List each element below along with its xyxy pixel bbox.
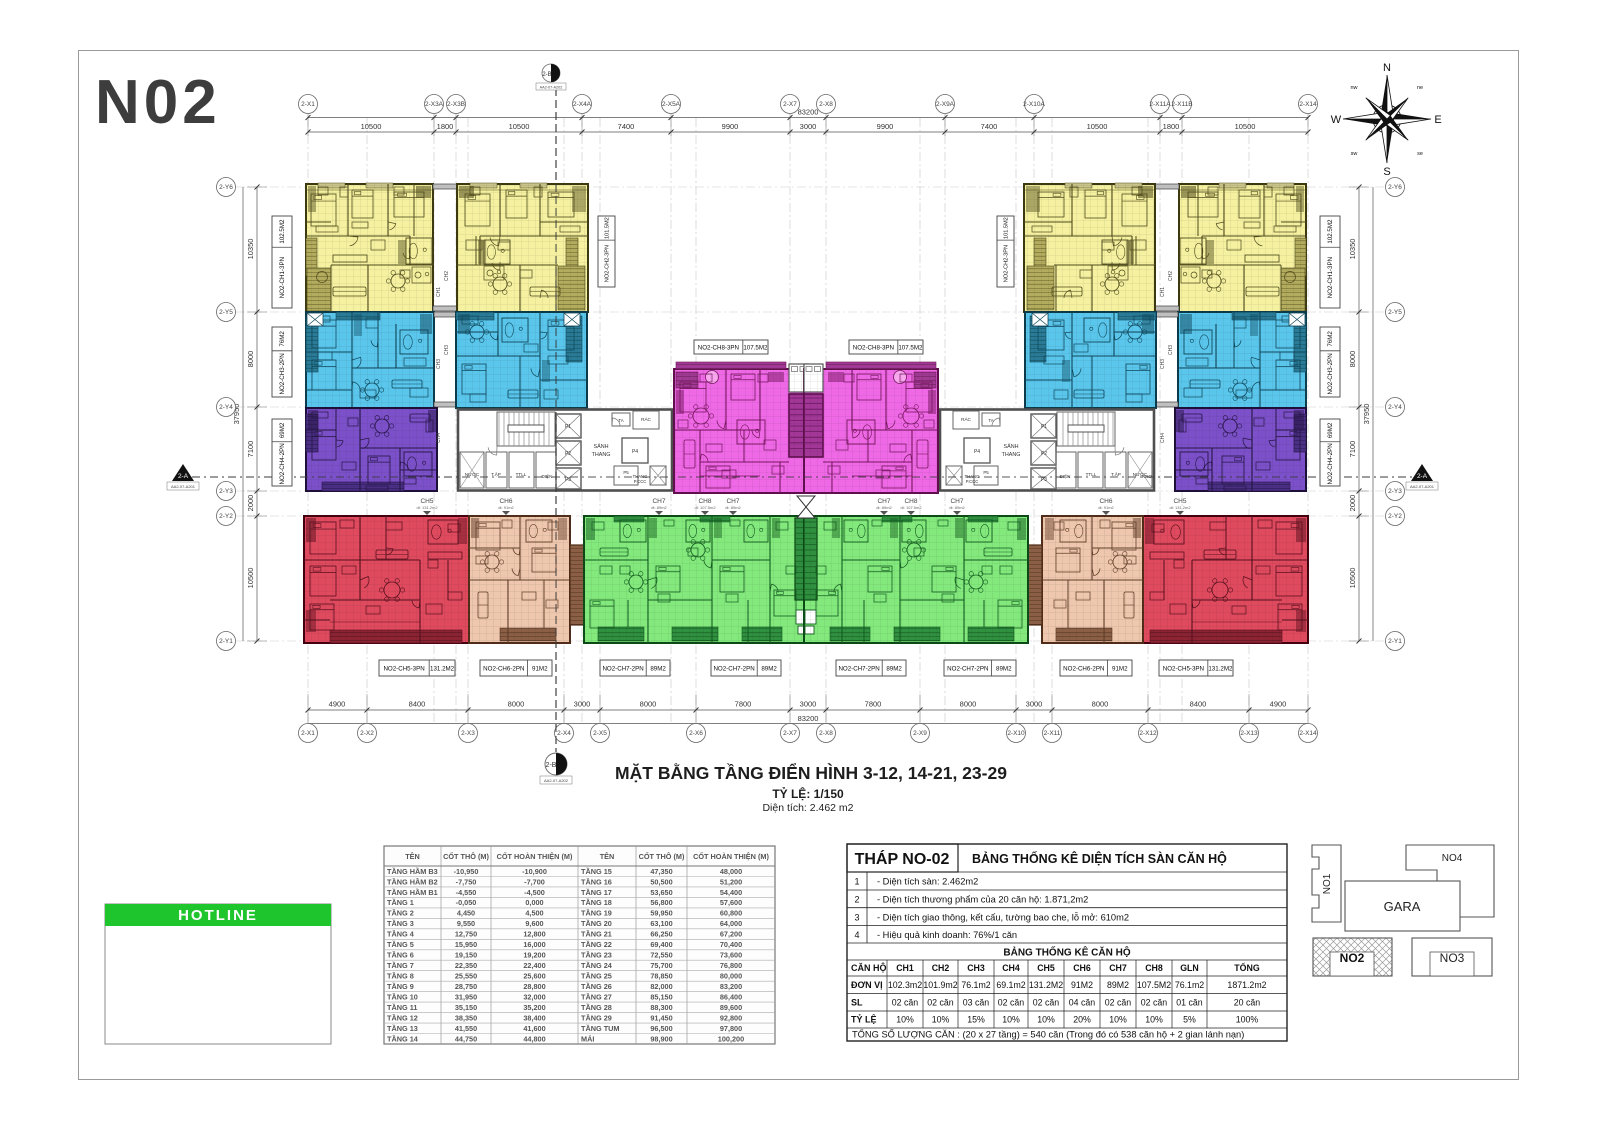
svg-text:2-X12: 2-X12: [1139, 730, 1157, 737]
svg-text:CH3: CH3: [967, 963, 985, 973]
svg-text:7100: 7100: [1348, 441, 1357, 458]
svg-text:131.2M2: 131.2M2: [1029, 980, 1063, 990]
svg-text:CH6: CH6: [1099, 498, 1112, 505]
svg-text:TA: TA: [618, 418, 623, 423]
svg-text:9,550: 9,550: [457, 919, 475, 928]
svg-text:-4,500: -4,500: [524, 888, 545, 897]
svg-text:15,950: 15,950: [455, 940, 477, 949]
svg-text:CH6: CH6: [499, 498, 512, 505]
svg-text:CH2: CH2: [932, 963, 950, 973]
svg-text:100%: 100%: [1236, 1015, 1259, 1025]
svg-text:2-X13: 2-X13: [1240, 730, 1258, 737]
svg-text:76M2: 76M2: [1327, 331, 1334, 347]
svg-text:TẦNG 27: TẦNG 27: [581, 992, 612, 1002]
svg-text:dt: 89m2: dt: 89m2: [949, 505, 965, 510]
svg-text:76.1m2: 76.1m2: [961, 980, 990, 990]
svg-text:P.CCC: P.CCC: [966, 479, 979, 484]
svg-text:4,450: 4,450: [457, 909, 475, 918]
svg-text:CỐT THÔ (M): CỐT THÔ (M): [639, 851, 685, 861]
svg-text:10500: 10500: [1087, 122, 1108, 131]
svg-text:50,500: 50,500: [650, 877, 672, 886]
svg-text:TTLL: TTLL: [516, 472, 527, 477]
svg-text:-10,950: -10,950: [454, 867, 479, 876]
svg-text:0,000: 0,000: [525, 898, 543, 907]
svg-text:2-Y1: 2-Y1: [219, 638, 233, 645]
svg-text:TẦNG 6: TẦNG 6: [387, 950, 414, 960]
svg-text:TẦNG 25: TẦNG 25: [581, 971, 612, 981]
svg-text:NO2-CH4-2PN: NO2-CH4-2PN: [1327, 443, 1334, 484]
svg-text:102.3m2: 102.3m2: [888, 980, 922, 990]
svg-text:P4: P4: [632, 449, 638, 455]
svg-text:dt: 131.2m2: dt: 131.2m2: [1169, 505, 1191, 510]
svg-text:03 căn: 03 căn: [963, 998, 990, 1008]
svg-text:NO2: NO2: [1340, 951, 1365, 965]
svg-text:85,150: 85,150: [650, 993, 672, 1002]
svg-text:8400: 8400: [409, 700, 426, 709]
svg-text:37950: 37950: [1362, 404, 1371, 425]
svg-text:NO2-CH7-2PN: NO2-CH7-2PN: [838, 665, 879, 672]
svg-text:25,600: 25,600: [523, 972, 545, 981]
svg-text:TẦNG 12: TẦNG 12: [387, 1012, 418, 1022]
svg-text:-7,750: -7,750: [456, 877, 477, 886]
svg-text:TẦNG 14: TẦNG 14: [387, 1033, 419, 1043]
svg-text:91M2: 91M2: [1071, 980, 1093, 990]
svg-text:10350: 10350: [1348, 239, 1357, 260]
svg-text:TẦNG HẦM B1: TẦNG HẦM B1: [387, 887, 438, 897]
svg-text:102.5M2: 102.5M2: [1327, 219, 1334, 244]
svg-text:101.5M2: 101.5M2: [1004, 217, 1010, 239]
svg-text:CỐT THÔ (M): CỐT THÔ (M): [443, 851, 489, 861]
svg-text:76M2: 76M2: [279, 331, 286, 347]
svg-text:NO2-CH6-2PN: NO2-CH6-2PN: [1063, 665, 1104, 672]
svg-text:P1: P1: [1041, 424, 1047, 430]
svg-text:RÁC: RÁC: [641, 416, 651, 422]
svg-text:69M2: 69M2: [279, 422, 286, 438]
svg-text:ĐƠN VỊ: ĐƠN VỊ: [851, 980, 883, 990]
svg-text:dt: 89m2: dt: 89m2: [651, 505, 667, 510]
svg-text:BẢNG THỐNG KÊ DIỆN TÍCH SÀN CĂ: BẢNG THỐNG KÊ DIỆN TÍCH SÀN CĂN HỘ: [972, 851, 1227, 866]
svg-text:10500: 10500: [361, 122, 382, 131]
svg-text:38,400: 38,400: [523, 1013, 545, 1022]
svg-text:4,500: 4,500: [525, 909, 543, 918]
svg-text:NƯỚC: NƯỚC: [465, 471, 480, 477]
svg-text:ĐIỆN: ĐIỆN: [542, 472, 553, 479]
svg-text:2-B: 2-B: [542, 72, 551, 78]
svg-text:73,600: 73,600: [720, 951, 742, 960]
svg-text:-0,050: -0,050: [456, 898, 477, 907]
svg-text:CH4: CH4: [436, 433, 442, 443]
svg-text:BẢNG THỐNG KÊ CĂN HỘ: BẢNG THỐNG KÊ CĂN HỘ: [1003, 945, 1130, 959]
svg-text:3: 3: [854, 912, 859, 922]
svg-text:dt: 107.5m2: dt: 107.5m2: [900, 505, 922, 510]
svg-text:76,800: 76,800: [720, 961, 742, 970]
svg-text:TẦNG 10: TẦNG 10: [387, 992, 418, 1002]
svg-text:41,600: 41,600: [523, 1024, 545, 1033]
svg-text:2-A: 2-A: [1417, 473, 1428, 480]
svg-text:8000: 8000: [640, 700, 657, 709]
svg-text:2-X10A: 2-X10A: [1023, 101, 1045, 108]
svg-text:107.5M2: 107.5M2: [1137, 980, 1171, 990]
svg-text:10500: 10500: [246, 568, 255, 589]
svg-text:92,800: 92,800: [720, 1013, 742, 1022]
svg-text:8000: 8000: [1348, 351, 1357, 368]
svg-text:83,200: 83,200: [720, 982, 742, 991]
svg-text:89,600: 89,600: [720, 1003, 742, 1012]
svg-text:P2: P2: [1041, 451, 1047, 457]
svg-text:-7,700: -7,700: [524, 877, 545, 886]
svg-text:10%: 10%: [932, 1015, 950, 1025]
svg-text:2-X5A: 2-X5A: [662, 101, 681, 108]
svg-text:NO3: NO3: [1440, 951, 1465, 965]
svg-text:SẢNH: SẢNH: [1004, 443, 1019, 450]
svg-text:TỔNG: TỔNG: [1234, 962, 1260, 973]
svg-text:2000: 2000: [1348, 495, 1357, 512]
svg-text:83200: 83200: [798, 714, 819, 723]
svg-text:THÁP NO-02: THÁP NO-02: [855, 849, 950, 868]
svg-text:dt: 107.5m2: dt: 107.5m2: [694, 505, 716, 510]
svg-text:02 căn: 02 căn: [1141, 998, 1168, 1008]
svg-text:W: W: [1331, 114, 1342, 126]
svg-text:TỶ LỆ: 1/150: TỶ LỆ: 1/150: [772, 786, 844, 801]
svg-text:nw: nw: [1350, 85, 1357, 91]
svg-text:38,350: 38,350: [455, 1013, 477, 1022]
svg-text:2-Y4: 2-Y4: [1388, 404, 1402, 411]
svg-text:NO2-CH7-2PN: NO2-CH7-2PN: [947, 665, 988, 672]
svg-text:NO2-CH1-3PN: NO2-CH1-3PN: [1327, 257, 1334, 298]
svg-text:8000: 8000: [1092, 700, 1109, 709]
svg-text:2-X14: 2-X14: [1299, 730, 1317, 737]
svg-text:02 căn: 02 căn: [1105, 998, 1132, 1008]
svg-text:NO2-CH8-3PN: NO2-CH8-3PN: [853, 344, 894, 351]
svg-text:2-A: 2-A: [178, 473, 189, 480]
svg-text:CH2: CH2: [1168, 271, 1174, 281]
svg-text:2-Y3: 2-Y3: [1388, 488, 1402, 495]
svg-text:4900: 4900: [1270, 700, 1287, 709]
svg-text:2-Y1: 2-Y1: [1388, 638, 1402, 645]
svg-text:86,400: 86,400: [720, 993, 742, 1002]
svg-text:10350: 10350: [246, 239, 255, 260]
svg-text:2-X11: 2-X11: [1044, 730, 1061, 737]
svg-text:P4: P4: [974, 449, 980, 455]
svg-text:96,500: 96,500: [650, 1024, 672, 1033]
svg-text:NO2-CH5-3PN: NO2-CH5-3PN: [383, 665, 424, 672]
svg-text:P2: P2: [565, 451, 571, 457]
svg-text:MÁI: MÁI: [581, 1034, 594, 1043]
svg-text:P.CCC: P.CCC: [634, 479, 647, 484]
svg-text:CỐT HOÀN THIỆN (M): CỐT HOÀN THIỆN (M): [497, 851, 573, 861]
svg-text:8000: 8000: [960, 700, 977, 709]
svg-text:CH3: CH3: [1160, 359, 1166, 369]
svg-text:8000: 8000: [246, 351, 255, 368]
svg-text:8000: 8000: [508, 700, 525, 709]
svg-text:GLN: GLN: [1180, 963, 1199, 973]
svg-text:N02: N02: [95, 68, 221, 137]
svg-text:TẦNG 3: TẦNG 3: [387, 918, 414, 928]
svg-text:dt: 89m2: dt: 89m2: [725, 505, 741, 510]
svg-text:RÁC: RÁC: [961, 416, 971, 422]
svg-text:2-X9: 2-X9: [913, 730, 927, 737]
svg-text:02 căn: 02 căn: [892, 998, 919, 1008]
svg-text:2-X11B: 2-X11B: [1171, 101, 1192, 108]
svg-text:TẦNG 17: TẦNG 17: [581, 887, 612, 897]
svg-text:CH1: CH1: [1160, 287, 1166, 297]
svg-text:P5: P5: [983, 470, 989, 475]
svg-text:89M2: 89M2: [886, 665, 902, 672]
svg-text:T.ẬP: T.ẬP: [491, 471, 501, 477]
svg-text:SẢNH: SẢNH: [594, 443, 609, 450]
svg-text:60,800: 60,800: [720, 909, 742, 918]
svg-text:- Diện tích sàn: 2.462m2: - Diện tích sàn: 2.462m2: [877, 877, 978, 887]
svg-text:2: 2: [854, 895, 859, 905]
svg-text:HOTLINE: HOTLINE: [178, 907, 258, 924]
svg-text:7400: 7400: [618, 122, 635, 131]
svg-text:CH3: CH3: [1168, 345, 1174, 355]
svg-text:2-X7: 2-X7: [783, 101, 797, 108]
svg-text:72,550: 72,550: [650, 951, 672, 960]
svg-text:T.ẬP: T.ẬP: [1111, 471, 1121, 477]
svg-text:TẦNG 7: TẦNG 7: [387, 960, 414, 970]
svg-text:76.1m2: 76.1m2: [1175, 980, 1204, 990]
svg-text:AA2-07-A202: AA2-07-A202: [540, 86, 563, 90]
svg-text:89M2: 89M2: [1107, 980, 1129, 990]
svg-text:CH1: CH1: [896, 963, 914, 973]
svg-text:CỐT HOÀN THIỆN (M): CỐT HOÀN THIỆN (M): [693, 851, 769, 861]
svg-text:AA2-07-A202: AA2-07-A202: [544, 778, 569, 783]
svg-text:2-X4A: 2-X4A: [573, 101, 592, 108]
svg-text:P3: P3: [1041, 477, 1047, 483]
svg-text:01 căn: 01 căn: [1176, 998, 1203, 1008]
svg-text:2-X4: 2-X4: [557, 730, 571, 737]
svg-text:22,350: 22,350: [455, 961, 477, 970]
svg-text:ĐIỆN: ĐIỆN: [1060, 472, 1071, 479]
svg-text:15%: 15%: [967, 1015, 985, 1025]
svg-text:2-X8: 2-X8: [819, 101, 833, 108]
svg-text:69.1m2: 69.1m2: [996, 980, 1025, 990]
svg-text:TẦNG 23: TẦNG 23: [581, 950, 612, 960]
svg-text:CH8: CH8: [1145, 963, 1163, 973]
svg-text:28,750: 28,750: [455, 982, 477, 991]
svg-text:NO2-CH7-2PN: NO2-CH7-2PN: [713, 665, 754, 672]
svg-text:2-X11A: 2-X11A: [1149, 101, 1171, 108]
svg-text:70,400: 70,400: [720, 940, 742, 949]
svg-text:89M2: 89M2: [761, 665, 777, 672]
svg-text:2-X3: 2-X3: [461, 730, 475, 737]
svg-text:20 căn: 20 căn: [1234, 998, 1261, 1008]
svg-text:TẦNG 1: TẦNG 1: [387, 897, 414, 907]
svg-text:NO4: NO4: [1442, 853, 1463, 864]
svg-text:25,550: 25,550: [455, 972, 477, 981]
svg-text:97,800: 97,800: [720, 1024, 742, 1033]
svg-text:CH2: CH2: [444, 271, 450, 281]
svg-text:NO2-CH6-2PN: NO2-CH6-2PN: [483, 665, 524, 672]
svg-text:107.5M2: 107.5M2: [898, 344, 923, 351]
svg-text:02 căn: 02 căn: [998, 998, 1025, 1008]
svg-text:2-Y6: 2-Y6: [219, 184, 233, 191]
svg-text:10500: 10500: [1348, 568, 1357, 589]
svg-text:91M2: 91M2: [532, 665, 548, 672]
svg-text:12,750: 12,750: [455, 930, 477, 939]
svg-text:1800: 1800: [437, 122, 454, 131]
svg-text:102.5M2: 102.5M2: [279, 219, 286, 244]
svg-text:NO2-CH1-3PN: NO2-CH1-3PN: [279, 257, 286, 298]
svg-text:TỔNG SỐ LƯỢNG CĂN : (20 x 27 t: TỔNG SỐ LƯỢNG CĂN : (20 x 27 tầng) = 540…: [852, 1029, 1244, 1040]
svg-text:69M2: 69M2: [1327, 422, 1334, 438]
svg-text:CH7: CH7: [652, 498, 665, 505]
svg-text:91M2: 91M2: [1112, 665, 1128, 672]
svg-text:TẦNG 5: TẦNG 5: [387, 939, 414, 949]
svg-text:2-X3A: 2-X3A: [425, 101, 444, 108]
svg-text:CH7: CH7: [726, 498, 739, 505]
svg-text:TẦNG 21: TẦNG 21: [581, 929, 612, 939]
svg-text:AA2-07-A201: AA2-07-A201: [1410, 484, 1435, 489]
svg-text:101.5M2: 101.5M2: [605, 217, 611, 239]
svg-text:78,850: 78,850: [650, 972, 672, 981]
svg-text:ne: ne: [1417, 85, 1423, 91]
svg-text:dt: 131.2m2: dt: 131.2m2: [416, 505, 438, 510]
svg-text:P5: P5: [623, 470, 629, 475]
svg-text:TẦNG 13: TẦNG 13: [387, 1023, 418, 1033]
svg-text:5%: 5%: [1183, 1015, 1196, 1025]
svg-text:P1: P1: [565, 424, 571, 430]
svg-text:131.2M2: 131.2M2: [1208, 665, 1233, 672]
svg-text:82,000: 82,000: [650, 982, 672, 991]
svg-text:TẦNG 16: TẦNG 16: [581, 876, 612, 886]
svg-text:44,750: 44,750: [455, 1034, 477, 1043]
svg-text:dt: 89m2: dt: 89m2: [876, 505, 892, 510]
svg-text:TẦNG 18: TẦNG 18: [581, 897, 612, 907]
svg-text:16,000: 16,000: [523, 940, 545, 949]
svg-text:20%: 20%: [1073, 1015, 1091, 1025]
svg-text:2-X5: 2-X5: [593, 730, 607, 737]
svg-text:10%: 10%: [1109, 1015, 1127, 1025]
svg-text:KHO: KHO: [1142, 474, 1152, 479]
svg-text:69,400: 69,400: [650, 940, 672, 949]
svg-text:41,550: 41,550: [455, 1024, 477, 1033]
svg-text:TẦNG 28: TẦNG 28: [581, 1002, 612, 1012]
svg-text:2-X10: 2-X10: [1007, 730, 1025, 737]
svg-text:TẦNG 15: TẦNG 15: [581, 866, 612, 876]
svg-text:MẶT BẰNG TẦNG ĐIỂN HÌNH 3-12,: MẶT BẰNG TẦNG ĐIỂN HÌNH 3-12, 14-21, 23-…: [615, 762, 1007, 783]
svg-text:48,000: 48,000: [720, 867, 742, 876]
svg-text:CH7: CH7: [877, 498, 890, 505]
svg-text:NO1: NO1: [1322, 873, 1333, 894]
svg-text:19,200: 19,200: [523, 951, 545, 960]
svg-text:8400: 8400: [1190, 700, 1207, 709]
svg-text:sw: sw: [1351, 151, 1358, 157]
svg-text:31,950: 31,950: [455, 993, 477, 1002]
svg-text:AA2-07-A201: AA2-07-A201: [171, 484, 196, 489]
svg-text:131.2M2: 131.2M2: [430, 665, 455, 672]
svg-text:7100: 7100: [246, 441, 255, 458]
svg-text:2-X9A: 2-X9A: [936, 101, 955, 108]
svg-text:35,200: 35,200: [523, 1003, 545, 1012]
svg-text:-10,900: -10,900: [522, 867, 547, 876]
svg-text:TẦNG 19: TẦNG 19: [581, 908, 612, 918]
svg-text:2-X3B: 2-X3B: [447, 101, 465, 108]
svg-text:TÊN: TÊN: [405, 852, 420, 861]
svg-text:NO2-CH2-3PN: NO2-CH2-3PN: [605, 245, 611, 282]
svg-text:2-X8: 2-X8: [819, 730, 833, 737]
svg-text:91,450: 91,450: [650, 1013, 672, 1022]
svg-text:TẦNG TUM: TẦNG TUM: [581, 1023, 620, 1033]
svg-text:4: 4: [854, 930, 859, 940]
svg-text:CH5: CH5: [420, 498, 433, 505]
svg-text:- Diện tích giao thông, kết cấ: - Diện tích giao thông, kết cấu, tường b…: [877, 912, 1129, 922]
svg-text:THANG: THANG: [1002, 452, 1021, 458]
svg-text:89M2: 89M2: [996, 665, 1012, 672]
svg-text:2-X2: 2-X2: [360, 730, 374, 737]
svg-text:S: S: [1383, 166, 1390, 178]
svg-text:3000: 3000: [800, 122, 817, 131]
svg-text:66,250: 66,250: [650, 930, 672, 939]
svg-text:2-X1: 2-X1: [301, 101, 315, 108]
svg-text:- Diện tích thương phẩm của 20: - Diện tích thương phẩm của 20 căn hộ: 1…: [877, 895, 1088, 905]
svg-text:CH4: CH4: [1002, 963, 1020, 973]
svg-text:83200: 83200: [798, 108, 819, 117]
svg-text:TẦNG 20: TẦNG 20: [581, 918, 612, 928]
svg-text:TTLL: TTLL: [1086, 472, 1097, 477]
svg-text:98,900: 98,900: [650, 1034, 672, 1043]
svg-text:E: E: [1434, 114, 1441, 126]
svg-text:NO2-CH4-2PN: NO2-CH4-2PN: [279, 443, 286, 484]
svg-text:101.9m2: 101.9m2: [923, 980, 957, 990]
svg-text:NO2-CH8-3PN: NO2-CH8-3PN: [698, 344, 739, 351]
svg-text:CH4: CH4: [1160, 433, 1166, 443]
svg-text:12,800: 12,800: [523, 930, 545, 939]
svg-text:CH5: CH5: [1037, 963, 1055, 973]
svg-text:2-Y3: 2-Y3: [219, 488, 233, 495]
svg-text:2-Y2: 2-Y2: [219, 513, 233, 520]
svg-text:NO2-CH7-2PN: NO2-CH7-2PN: [602, 665, 643, 672]
svg-text:2-X1: 2-X1: [301, 730, 315, 737]
svg-text:NO2-CH3-2PN: NO2-CH3-2PN: [279, 353, 286, 394]
svg-text:TẦNG HẦM B3: TẦNG HẦM B3: [387, 866, 438, 876]
svg-text:10%: 10%: [1037, 1015, 1055, 1025]
svg-text:3000: 3000: [1026, 700, 1043, 709]
svg-text:GARA: GARA: [1384, 899, 1421, 914]
svg-text:44,800: 44,800: [523, 1034, 545, 1043]
svg-text:3000: 3000: [574, 700, 591, 709]
svg-text:NO2-CH5-3PN: NO2-CH5-3PN: [1163, 665, 1204, 672]
svg-text:2-X7: 2-X7: [783, 730, 797, 737]
svg-text:TÊN: TÊN: [600, 852, 615, 861]
svg-text:107.5M2: 107.5M2: [743, 344, 768, 351]
svg-text:CH5: CH5: [1173, 498, 1186, 505]
svg-text:7800: 7800: [865, 700, 882, 709]
svg-text:2-Y2: 2-Y2: [1388, 513, 1402, 520]
svg-text:1: 1: [854, 877, 859, 887]
svg-text:dt: 91m2: dt: 91m2: [1098, 505, 1114, 510]
svg-text:CH7: CH7: [950, 498, 963, 505]
svg-text:TẦNG 2: TẦNG 2: [387, 908, 414, 918]
svg-text:SL: SL: [851, 998, 863, 1008]
svg-text:2-Y5: 2-Y5: [1388, 309, 1402, 316]
svg-text:CH8: CH8: [904, 498, 917, 505]
svg-text:CH3: CH3: [436, 359, 442, 369]
svg-text:10%: 10%: [1002, 1015, 1020, 1025]
svg-text:28,800: 28,800: [523, 982, 545, 991]
svg-text:3000: 3000: [800, 700, 817, 709]
svg-text:CH1: CH1: [436, 287, 442, 297]
svg-text:9,600: 9,600: [525, 919, 543, 928]
svg-text:9900: 9900: [877, 122, 894, 131]
svg-text:75,700: 75,700: [650, 961, 672, 970]
svg-text:32,000: 32,000: [523, 993, 545, 1002]
svg-text:CH8: CH8: [698, 498, 711, 505]
svg-text:7400: 7400: [981, 122, 998, 131]
svg-text:2-B: 2-B: [546, 762, 557, 769]
svg-text:THANG: THANG: [592, 452, 611, 458]
